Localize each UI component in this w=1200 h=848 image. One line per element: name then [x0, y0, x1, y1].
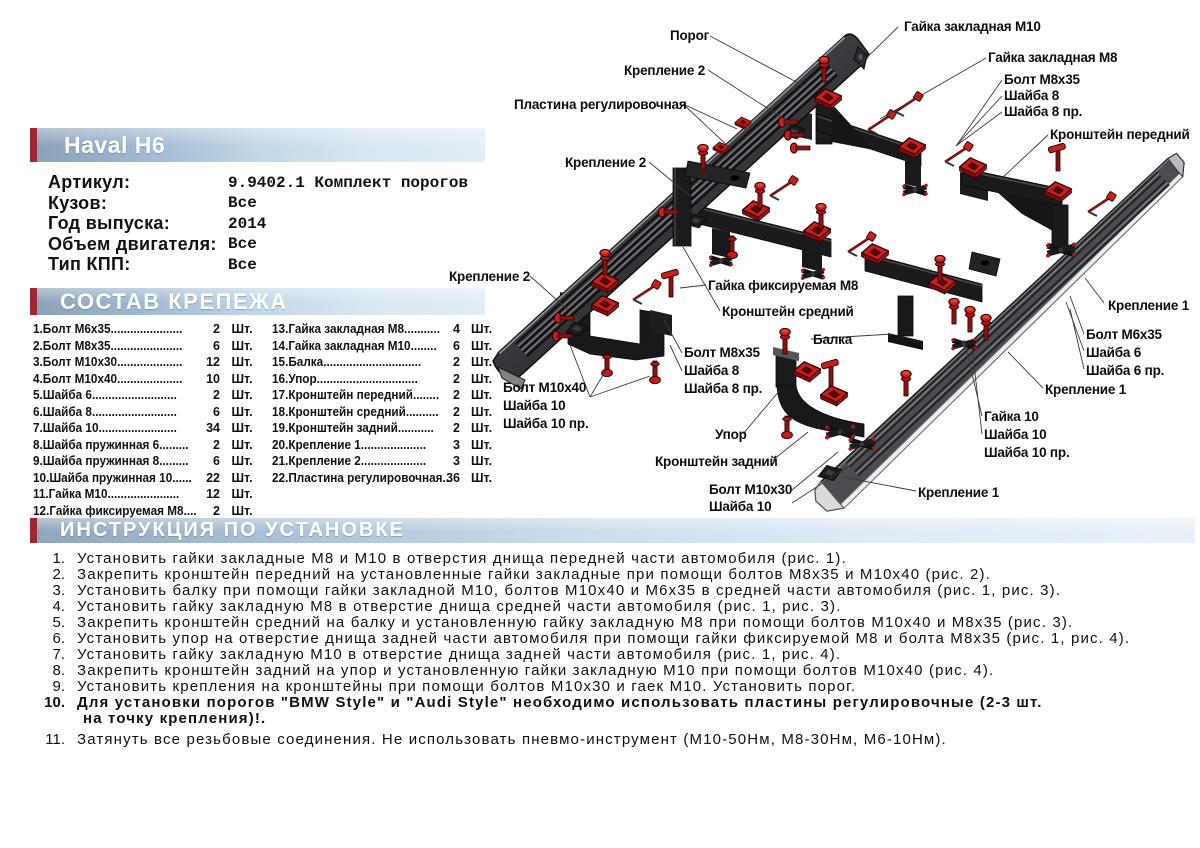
svg-text:Гайка 10: Гайка 10: [984, 409, 1039, 424]
svg-text:Крепление 2: Крепление 2: [624, 63, 705, 78]
svg-text:Крепление 2: Крепление 2: [565, 155, 646, 170]
svg-text:Шайба 10 пр.: Шайба 10 пр.: [984, 445, 1070, 460]
svg-text:Упор: Упор: [715, 427, 747, 442]
svg-text:Гайка фиксируемая М8: Гайка фиксируемая М8: [708, 278, 859, 293]
svg-text:Кронштейн передний: Кронштейн передний: [1050, 127, 1190, 142]
svg-text:Болт М8х35: Болт М8х35: [1004, 72, 1081, 87]
svg-text:Шайба 10: Шайба 10: [503, 398, 565, 413]
svg-text:Крепление 1: Крепление 1: [1045, 382, 1127, 397]
svg-text:Крепление 2: Крепление 2: [449, 269, 530, 284]
svg-text:Гайка закладная М10: Гайка закладная М10: [904, 19, 1041, 34]
svg-text:Шайба 8: Шайба 8: [1004, 88, 1060, 103]
svg-text:Шайба 6 пр.: Шайба 6 пр.: [1086, 363, 1164, 378]
svg-text:Пластина регулировочная: Пластина регулировочная: [514, 97, 687, 112]
svg-text:Крепление 1: Крепление 1: [918, 485, 1000, 500]
svg-text:Порог: Порог: [670, 28, 710, 43]
svg-text:Шайба 6: Шайба 6: [1086, 345, 1142, 360]
svg-text:Шайба 8 пр.: Шайба 8 пр.: [684, 381, 762, 396]
svg-text:Гайка закладная М8: Гайка закладная М8: [988, 50, 1118, 65]
svg-text:Шайба 10: Шайба 10: [984, 427, 1046, 442]
svg-text:Шайба 10 пр.: Шайба 10 пр.: [503, 416, 589, 431]
svg-text:Шайба 8: Шайба 8: [684, 363, 740, 378]
svg-text:Болт М10х30: Болт М10х30: [709, 482, 792, 497]
svg-text:Балка: Балка: [813, 332, 853, 347]
svg-text:Крепление 1: Крепление 1: [1108, 298, 1190, 313]
svg-text:Шайба 10: Шайба 10: [709, 499, 771, 514]
svg-text:Болт М6х35: Болт М6х35: [1086, 327, 1163, 342]
svg-text:Шайба 8 пр.: Шайба 8 пр.: [1004, 104, 1082, 119]
svg-text:Болт М8х35: Болт М8х35: [684, 345, 761, 360]
svg-text:Кронштейн задний: Кронштейн задний: [655, 454, 778, 469]
svg-text:Кронштейн средний: Кронштейн средний: [722, 304, 854, 319]
svg-text:Болт М10х40: Болт М10х40: [503, 380, 586, 395]
